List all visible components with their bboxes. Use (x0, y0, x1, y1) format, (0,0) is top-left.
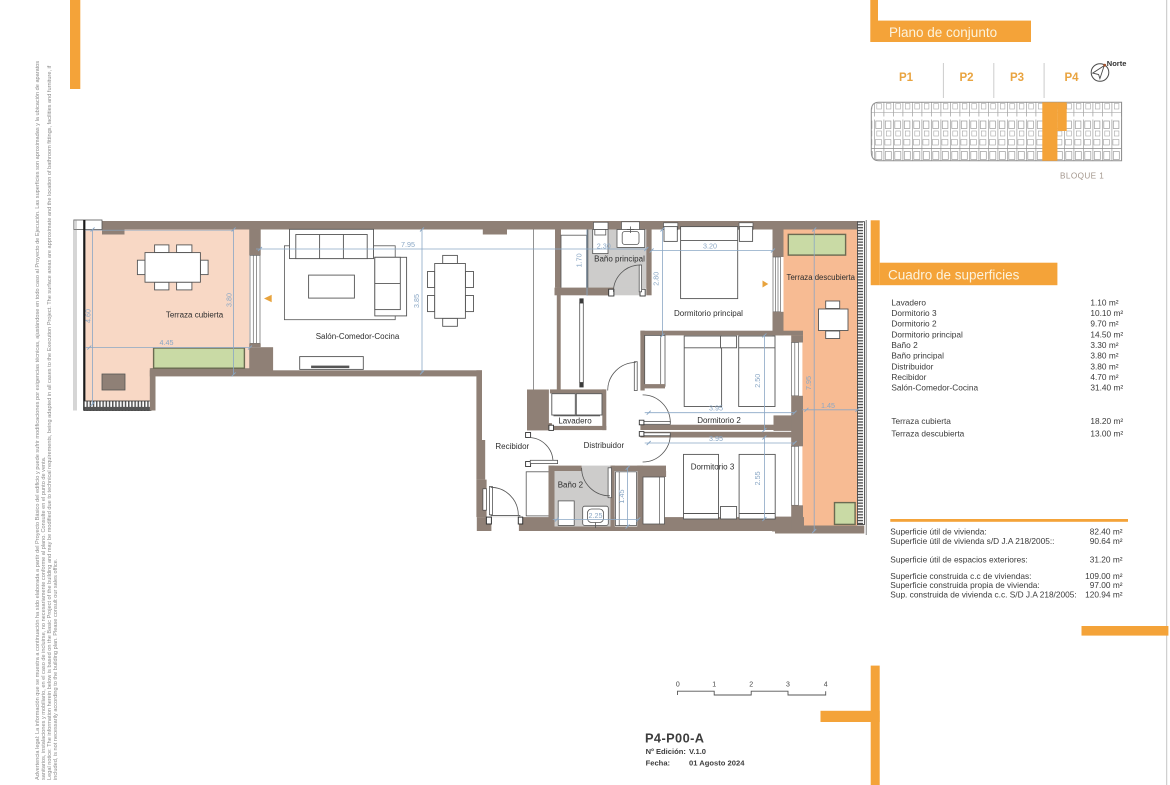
svg-text:14.50 m²: 14.50 m² (1090, 329, 1123, 339)
svg-text:3.80 m²: 3.80 m² (1090, 351, 1118, 361)
svg-text:Dormitorio 3: Dormitorio 3 (691, 463, 735, 472)
svg-text:Salón-Comedor-Cocina: Salón-Comedor-Cocina (891, 383, 978, 393)
svg-text:31.40 m²: 31.40 m² (1090, 383, 1123, 393)
svg-text:1.10 m²: 1.10 m² (1090, 297, 1118, 307)
svg-text:90.64 m²: 90.64 m² (1090, 536, 1123, 546)
svg-text:3.20: 3.20 (703, 242, 717, 251)
svg-text:3: 3 (786, 682, 790, 689)
svg-text:Baño 2: Baño 2 (558, 481, 584, 490)
svg-text:Nº Edición:: Nº Edición: (646, 747, 686, 756)
svg-text:0: 0 (676, 682, 680, 689)
svg-text:2.25: 2.25 (589, 511, 603, 520)
svg-text:Distribuidor: Distribuidor (891, 361, 933, 371)
svg-text:1.45: 1.45 (617, 490, 626, 504)
svg-text:2.50: 2.50 (753, 374, 762, 388)
svg-text:7.95: 7.95 (804, 376, 813, 390)
svg-text:Baño 2: Baño 2 (891, 340, 918, 350)
svg-text:Superficie útil de vivienda:: Superficie útil de vivienda: (890, 526, 986, 536)
svg-text:3.30 m²: 3.30 m² (1090, 340, 1118, 350)
svg-text:P4-P00-A: P4-P00-A (645, 731, 704, 746)
svg-text:Terraza cubierta: Terraza cubierta (166, 311, 224, 320)
svg-text:1.70: 1.70 (574, 253, 583, 267)
svg-text:Dormitorio principal: Dormitorio principal (891, 329, 963, 339)
svg-text:3.80: 3.80 (225, 293, 234, 307)
svg-text:Recibidor: Recibidor (495, 442, 529, 451)
svg-text:4.45: 4.45 (160, 338, 174, 347)
svg-text:Dormitorio 2: Dormitorio 2 (697, 416, 741, 425)
svg-text:Lavadero: Lavadero (891, 297, 926, 307)
svg-text:Distribuidor: Distribuidor (584, 441, 625, 450)
svg-text:7.95: 7.95 (401, 240, 415, 249)
svg-text:Dormitorio 2: Dormitorio 2 (891, 319, 937, 329)
svg-text:9.70 m²: 9.70 m² (1090, 319, 1118, 329)
svg-text:4.70 m²: 4.70 m² (1090, 372, 1118, 382)
svg-text:10.10 m²: 10.10 m² (1090, 308, 1123, 318)
svg-text:Lavadero: Lavadero (558, 417, 592, 426)
svg-text:3.85: 3.85 (412, 294, 421, 308)
svg-text:3.95: 3.95 (709, 434, 723, 443)
svg-text:Terraza cubierta: Terraza cubierta (891, 416, 951, 426)
svg-text:97.00 m²: 97.00 m² (1090, 580, 1123, 590)
svg-text:Fecha:: Fecha: (646, 758, 670, 767)
svg-text:2.55: 2.55 (753, 471, 762, 485)
svg-text:Recibidor: Recibidor (891, 372, 926, 382)
svg-text:4: 4 (824, 682, 828, 689)
svg-text:included, is not necessarily a: included, is not necessarily according t… (53, 558, 59, 780)
svg-text:BLOQUE 1: BLOQUE 1 (1060, 172, 1104, 181)
svg-text:Cuadro de superficies: Cuadro de superficies (888, 268, 1020, 283)
svg-text:Terraza descubierta: Terraza descubierta (787, 273, 856, 282)
svg-text:18.20 m²: 18.20 m² (1090, 416, 1123, 426)
svg-text:P4: P4 (1064, 72, 1079, 84)
svg-text:2: 2 (749, 682, 753, 689)
svg-text:Dormitorio 3: Dormitorio 3 (891, 308, 937, 318)
svg-text:Terraza descubierta: Terraza descubierta (891, 428, 964, 438)
svg-text:1.45: 1.45 (821, 401, 835, 410)
svg-text:13.00 m²: 13.00 m² (1090, 428, 1123, 438)
svg-text:Baño principal: Baño principal (594, 255, 645, 264)
svg-text:82.40 m²: 82.40 m² (1090, 526, 1123, 536)
svg-text:120.94 m²: 120.94 m² (1085, 590, 1123, 600)
svg-text:P3: P3 (1010, 72, 1024, 84)
svg-text:Sup. construida de vivienda c.: Sup. construida de vivienda c.c. S/D J.A… (890, 590, 1076, 600)
svg-text:Norte: Norte (1107, 59, 1127, 68)
svg-text:P1: P1 (899, 72, 914, 84)
svg-text:31.20 m²: 31.20 m² (1090, 554, 1123, 564)
svg-text:2.80: 2.80 (652, 272, 661, 286)
svg-text:3.80 m²: 3.80 m² (1090, 361, 1118, 371)
svg-text:2.30: 2.30 (597, 242, 611, 251)
svg-text:Plano de conjunto: Plano de conjunto (889, 25, 997, 40)
svg-text:Superficie construida propia d: Superficie construida propia de vivienda… (890, 580, 1039, 590)
svg-text:1: 1 (712, 682, 716, 689)
svg-text:Superficie útil de espacios ex: Superficie útil de espacios exteriores: (890, 554, 1027, 564)
svg-text:Dormitorio principal: Dormitorio principal (674, 309, 743, 318)
svg-text:Superficie útil de vivienda s/: Superficie útil de vivienda s/D J.A 218/… (890, 536, 1054, 546)
svg-text:4.60: 4.60 (84, 309, 93, 323)
svg-text:3.95: 3.95 (709, 404, 723, 413)
svg-text:01 Agosto 2024: 01 Agosto 2024 (689, 758, 745, 767)
svg-text:Salón-Comedor-Cocina: Salón-Comedor-Cocina (316, 332, 400, 341)
svg-text:V.1.0: V.1.0 (689, 747, 706, 756)
svg-text:P2: P2 (959, 72, 973, 84)
svg-text:Baño principal: Baño principal (891, 351, 944, 361)
